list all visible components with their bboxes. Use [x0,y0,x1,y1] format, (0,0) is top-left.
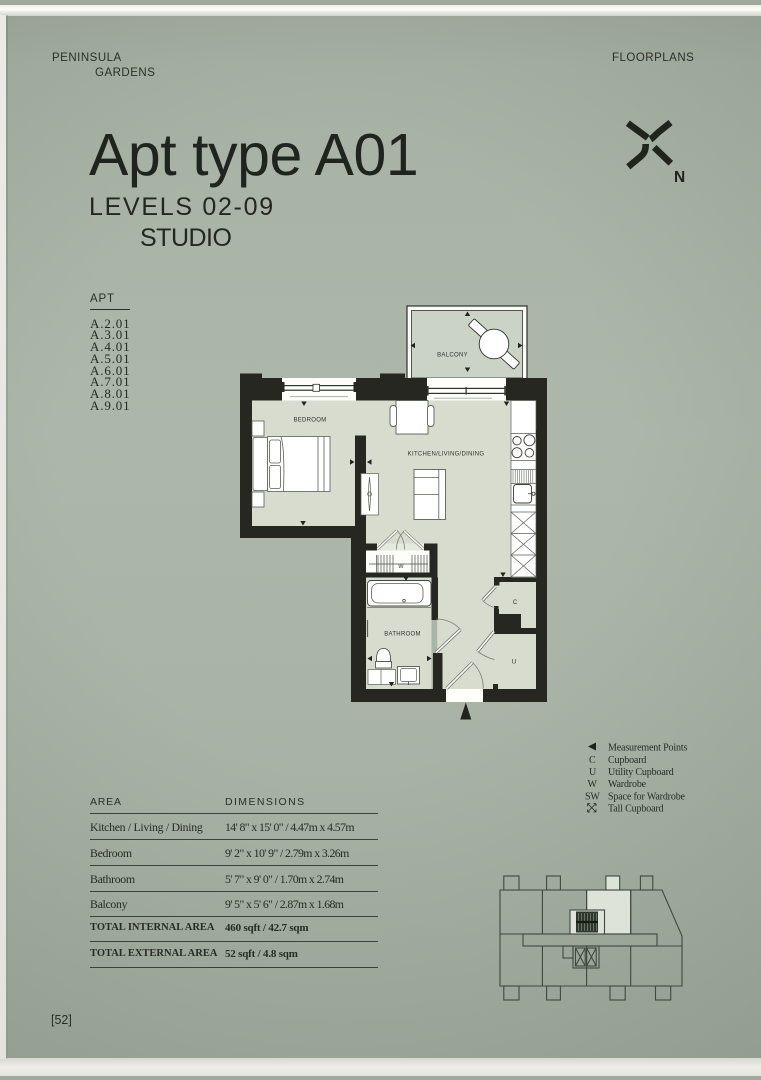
svg-text:N: N [674,169,685,186]
svg-text:C: C [513,600,518,606]
svg-text:C: C [589,755,596,766]
svg-text:Measurement Points: Measurement Points [608,743,687,754]
svg-text:W: W [588,779,598,790]
svg-text:Space for Wardrobe: Space for Wardrobe [608,791,686,802]
svg-text:BALCONY: BALCONY [437,353,468,359]
svg-text:U: U [589,767,597,778]
svg-text:Tall Cupboard: Tall Cupboard [608,804,664,815]
svg-text:U: U [512,660,516,666]
svg-text:SW: SW [585,791,600,802]
svg-text:KITCHEN/LIVING/DINING: KITCHEN/LIVING/DINING [408,452,485,458]
svg-text:BEDROOM: BEDROOM [293,418,326,424]
svg-text:W: W [398,564,404,570]
svg-text:Wardrobe: Wardrobe [608,779,647,790]
svg-text:BATHROOM: BATHROOM [384,632,421,638]
svg-text:Utility Cupboard: Utility Cupboard [608,767,674,778]
svg-text:Cupboard: Cupboard [608,755,646,766]
